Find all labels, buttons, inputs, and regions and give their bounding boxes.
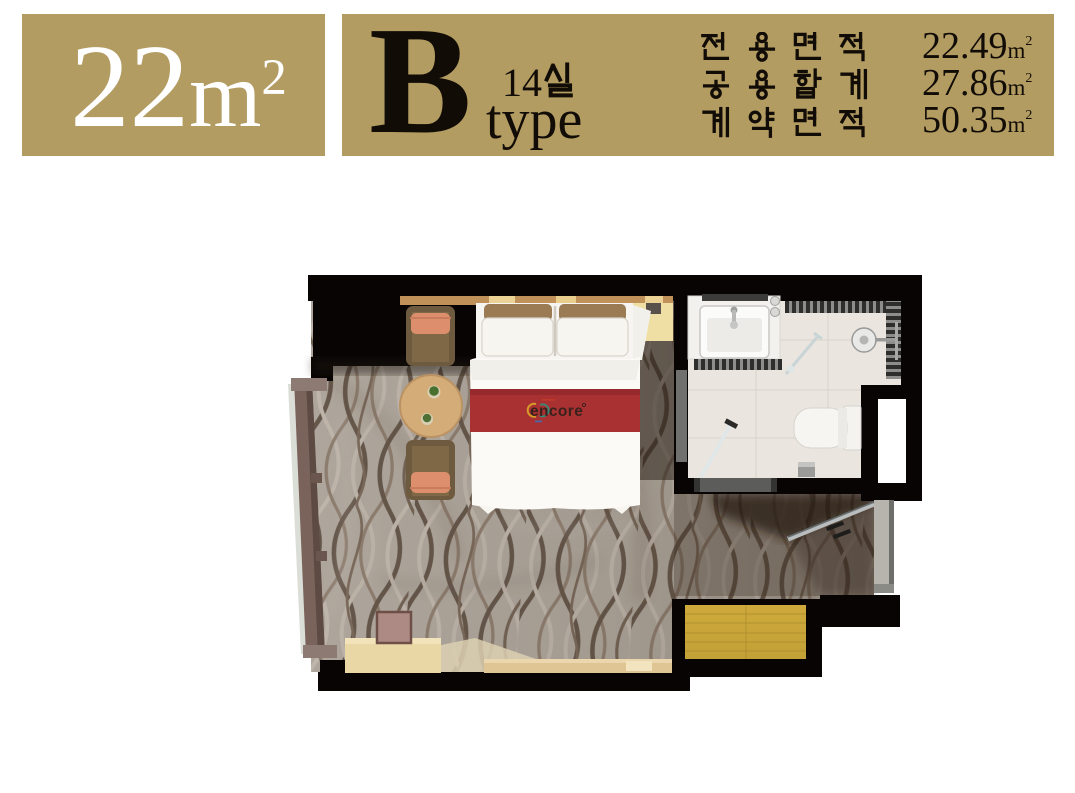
svg-text:encore: encore bbox=[530, 403, 583, 420]
